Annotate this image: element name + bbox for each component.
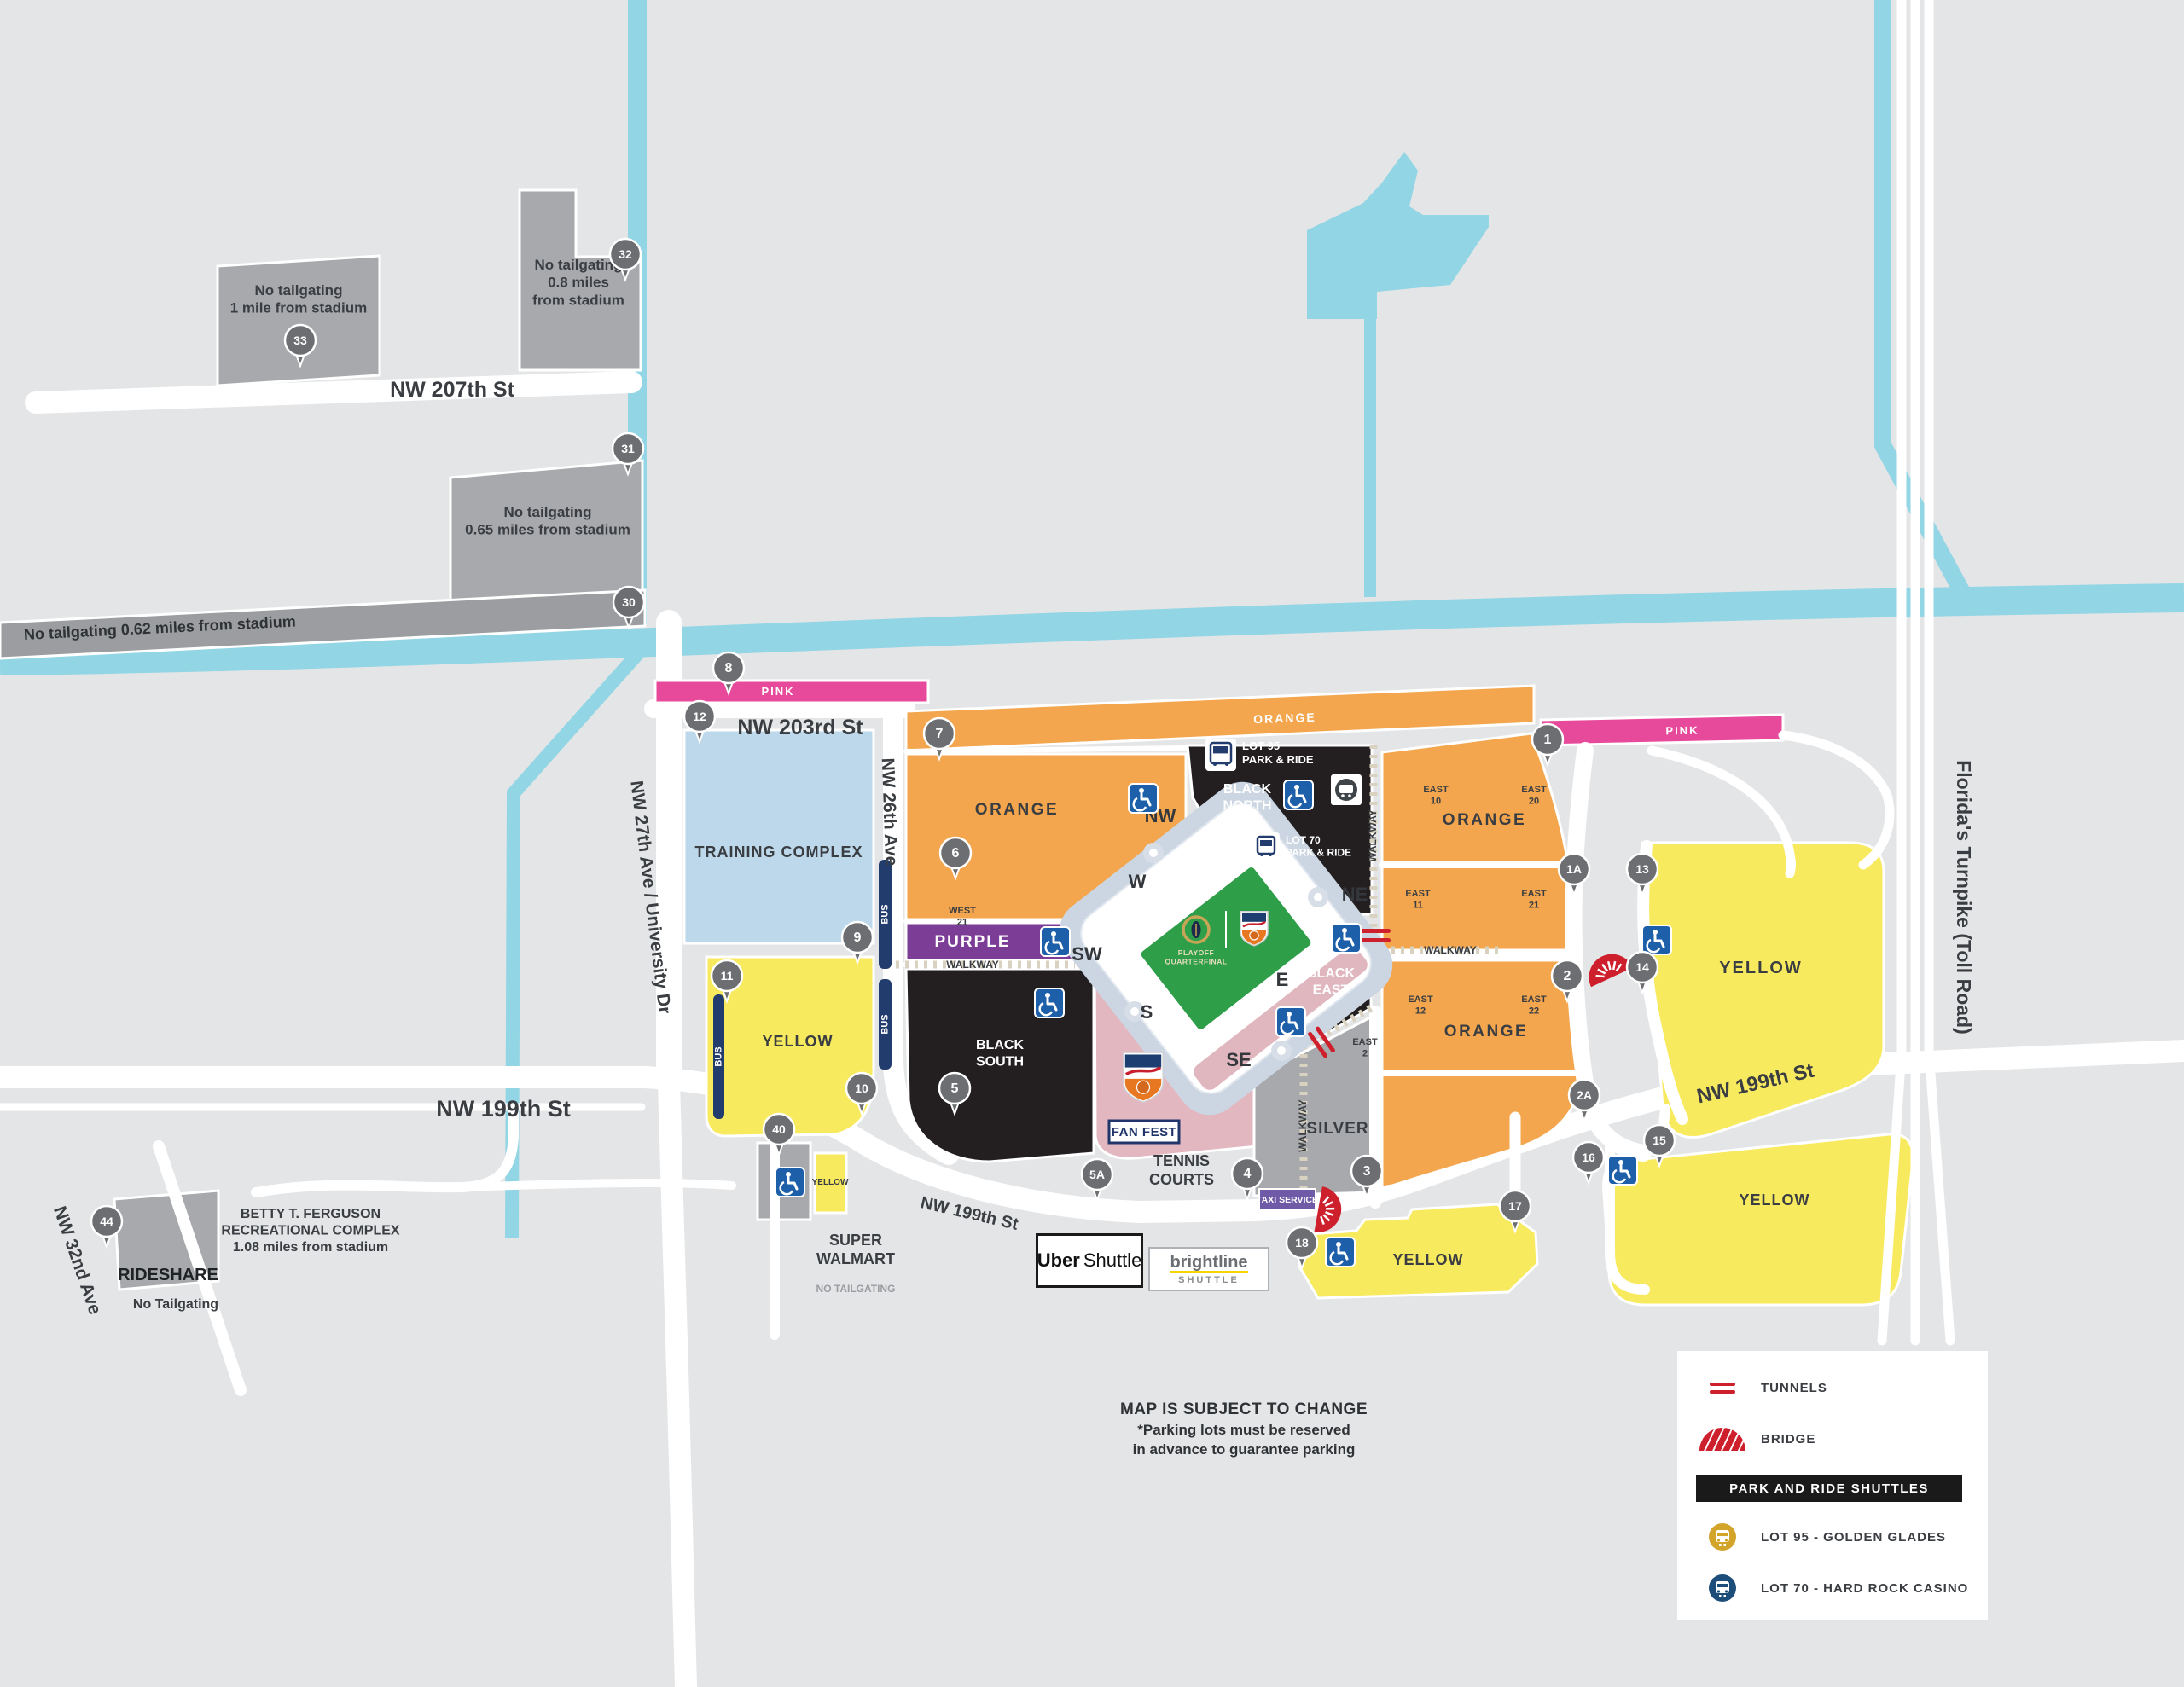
access-head (1294, 785, 1299, 790)
accessible-parking-icon (1332, 924, 1361, 953)
map-label: TENNISCOURTS (1149, 1152, 1214, 1188)
access-head (786, 1172, 791, 1177)
shield-orange-fruit (1136, 1081, 1149, 1093)
tunnel-bar (1360, 938, 1391, 942)
access-head (1336, 1242, 1341, 1247)
map-label: ORANGE (975, 801, 1059, 819)
badge-bus-wheel (1269, 853, 1272, 856)
access-head (1653, 930, 1658, 935)
map-label: SILVER (1306, 1120, 1368, 1138)
badge-bus-wheel (1260, 853, 1263, 856)
bus-lane-label: BUS (713, 1046, 723, 1066)
brightline-shuttle-stop: brightline SHUTTLE (1148, 1247, 1269, 1291)
legend-lot95-row: LOT 95 - GOLDEN GLADES (1696, 1522, 1971, 1551)
legend-tunnels-label: TUNNELS (1761, 1381, 1827, 1395)
access-head (1051, 931, 1056, 936)
pin-number: 18 (1295, 1236, 1309, 1249)
map-label: ORANGE (1253, 710, 1316, 726)
brightline-brand: brightline (1170, 1254, 1247, 1273)
map-label: NO TAILGATING (816, 1283, 896, 1295)
orange-west-divider (906, 748, 1186, 751)
map-label: Florida's Turnpike (Toll Road) (1953, 760, 1975, 1035)
access-head (1139, 788, 1144, 793)
bridge-icon (1696, 1428, 1749, 1451)
pin-number: 44 (100, 1215, 113, 1228)
pin-number: 17 (1508, 1199, 1522, 1213)
map-label: ORANGE (1444, 1023, 1528, 1041)
accessible-parking-icon (775, 1168, 804, 1197)
legend-bridge-label: BRIDGE (1761, 1432, 1815, 1446)
map-label: WALKWAY (946, 959, 999, 971)
stadium-gate-w: W (1129, 871, 1147, 892)
pin-number: 13 (1635, 862, 1649, 876)
lot95-shuttle-icon (1696, 1522, 1749, 1551)
badge-bus-window (1213, 746, 1228, 753)
badge-bus-wheel (1213, 762, 1217, 766)
uber-shuttle-stop: Uber Shuttle (1036, 1233, 1143, 1288)
disclaimer-line2: *Parking lots must be reserved (1072, 1422, 1416, 1439)
pin-number: 10 (855, 1081, 868, 1095)
pin-number: 1 (1544, 733, 1552, 747)
pin-number: 5 (951, 1081, 959, 1096)
fan-fest-label: FAN FEST (1112, 1125, 1177, 1139)
pin-number: 14 (1635, 960, 1649, 974)
pin-number: 6 (952, 846, 960, 861)
pin-number: 30 (622, 595, 636, 609)
map-label: No Tailgating (133, 1297, 218, 1312)
stadium-gate-ne: NE (1342, 884, 1368, 905)
stadium-gate-sw: SW (1072, 943, 1102, 965)
access-head (1287, 1012, 1292, 1017)
map-label: WALKWAY (1424, 944, 1477, 956)
shield-top-band (1242, 913, 1266, 921)
lot-training-complex (684, 730, 874, 943)
spiral-ramp-icon-center (1314, 893, 1322, 901)
tunnels-icon (1696, 1380, 1749, 1395)
accessible-parking-icon (1326, 1238, 1355, 1267)
shield-top-band (1125, 1054, 1161, 1067)
ferguson-east-road (462, 1183, 732, 1187)
accessible-parking-icon (1284, 780, 1313, 809)
pin-number: 8 (725, 661, 733, 675)
map-label: YELLOW (1740, 1191, 1810, 1209)
map-label: YELLOW (1393, 1251, 1464, 1268)
stadium-gate-se: SE (1226, 1049, 1251, 1070)
map-disclaimer: MAP IS SUBJECT TO CHANGE *Parking lots m… (1072, 1400, 1416, 1458)
map-label: PINK (761, 685, 794, 698)
map-label: YELLOW (812, 1178, 849, 1187)
bus-lane: BUS (713, 994, 724, 1119)
legend-lot70-row: LOT 70 - HARD ROCK CASINO (1696, 1574, 1971, 1603)
accessible-parking-icon (1276, 1007, 1305, 1036)
taxi-service-label: TAXI SERVICE (1257, 1195, 1318, 1205)
pin-number: 5A (1089, 1168, 1105, 1181)
accessible-parking-icon (1035, 988, 1064, 1017)
legend-lot70-label: LOT 70 - HARD ROCK CASINO (1761, 1581, 1968, 1596)
map-label: BETTY T. FERGUSONRECREATIONAL COMPLEX1.0… (221, 1207, 400, 1255)
parking-map: BUSBUSBUSPLAYOFFQUARTERFINALNWNNEWESWSSE… (0, 0, 2184, 1687)
lot-33-no-tailgating (218, 256, 380, 386)
bus-lane-label: BUS (880, 904, 890, 924)
pin-number: 31 (621, 442, 635, 455)
pin-number: 3 (1363, 1164, 1371, 1179)
uber-word: Shuttle (1083, 1249, 1142, 1272)
pin-number: 4 (1244, 1167, 1252, 1181)
access-head (1618, 1160, 1623, 1165)
transit-bus-front (1339, 785, 1353, 793)
lot-orange-east-upper (1382, 733, 1571, 950)
shield-orange-fruit (1250, 931, 1258, 940)
map-label: WALKWAY (1367, 809, 1379, 862)
pin-number: 32 (619, 247, 632, 261)
pin-number: 33 (293, 333, 307, 347)
brightline-word: SHUTTLE (1178, 1275, 1240, 1285)
transit-wheel (1348, 794, 1351, 797)
lot-pink-east (1541, 715, 1783, 745)
transit-wheel (1341, 794, 1345, 797)
map-label: NW 199th St (436, 1096, 571, 1122)
legend-tunnels-row: TUNNELS (1696, 1373, 1971, 1402)
access-head (1342, 928, 1347, 933)
pin-number: 1A (1566, 862, 1582, 876)
spiral-ramp-icon-center (1149, 849, 1158, 857)
disclaimer-line3: in advance to guarantee parking (1072, 1441, 1416, 1458)
map-label: PURPLE (934, 933, 1010, 951)
map-label: PINK (1665, 724, 1699, 738)
orange-bowl-shield-logo (1240, 912, 1268, 946)
access-head (1045, 993, 1050, 998)
map-label: NW 207th St (390, 378, 515, 402)
tunnel-bar (1360, 929, 1391, 933)
disclaimer-line1: MAP IS SUBJECT TO CHANGE (1072, 1400, 1416, 1419)
map-label: RIDESHARE (118, 1266, 218, 1284)
lot70-shuttle-icon (1696, 1574, 1749, 1603)
taxi-service-badge: TAXI SERVICE (1257, 1189, 1318, 1209)
bus-lane: BUS (879, 860, 892, 969)
pin-number: 7 (936, 727, 944, 741)
accessible-parking-icon (1642, 925, 1671, 954)
orange-bowl-shield-logo (1124, 1052, 1163, 1102)
map-label: ORANGE (1443, 811, 1526, 829)
stadium-gate-s: S (1141, 1001, 1153, 1023)
badge-bus-wheel (1225, 762, 1228, 766)
transit-logo-icon (1331, 774, 1362, 805)
map-label: YELLOW (763, 1033, 834, 1050)
legend-lot95-label: LOT 95 - GOLDEN GLADES (1761, 1530, 1946, 1545)
map-label: NW 203rd St (737, 716, 863, 739)
pin-number: 2A (1577, 1088, 1592, 1102)
stadium-gate-e: E (1276, 969, 1289, 990)
pin-number: 9 (854, 930, 862, 945)
lot70-park-ride-icon (1252, 832, 1280, 861)
pin-number: 16 (1582, 1151, 1595, 1164)
spiral-ramp-icon-center (1277, 1046, 1286, 1055)
spiral-ramp-icon-center (1130, 1007, 1139, 1016)
pin-number: 2 (1564, 969, 1571, 983)
uber-brand: Uber (1037, 1249, 1080, 1272)
legend-bridge-row: BRIDGE (1696, 1424, 1971, 1453)
map-label: TRAINING COMPLEX (694, 843, 863, 861)
map-label: NW 26th Ave (878, 757, 901, 867)
pin-number: 40 (772, 1122, 786, 1136)
accessible-parking-icon (1608, 1156, 1637, 1185)
bus-lane-label: BUS (880, 1014, 890, 1034)
map-legend: TUNNELS BRIDGE PARK AND RIDE SHUTTLES LO… (1677, 1351, 1988, 1620)
accessible-parking-icon (1129, 784, 1158, 813)
bus-lane: BUS (879, 979, 892, 1070)
pin-number: 15 (1653, 1133, 1666, 1147)
accessible-parking-icon (1041, 927, 1070, 956)
badge-bus-window (1260, 840, 1272, 846)
lot95-park-ride-icon (1205, 739, 1236, 771)
legend-header: PARK AND RIDE SHUTTLES (1696, 1475, 1962, 1502)
pin-number: 11 (721, 969, 734, 983)
lot-yellow-east-lower (1604, 1134, 1914, 1305)
pin-number: 12 (693, 710, 706, 723)
map-label: YELLOW (1719, 959, 1803, 977)
map-label: WALKWAY (1297, 1099, 1309, 1152)
